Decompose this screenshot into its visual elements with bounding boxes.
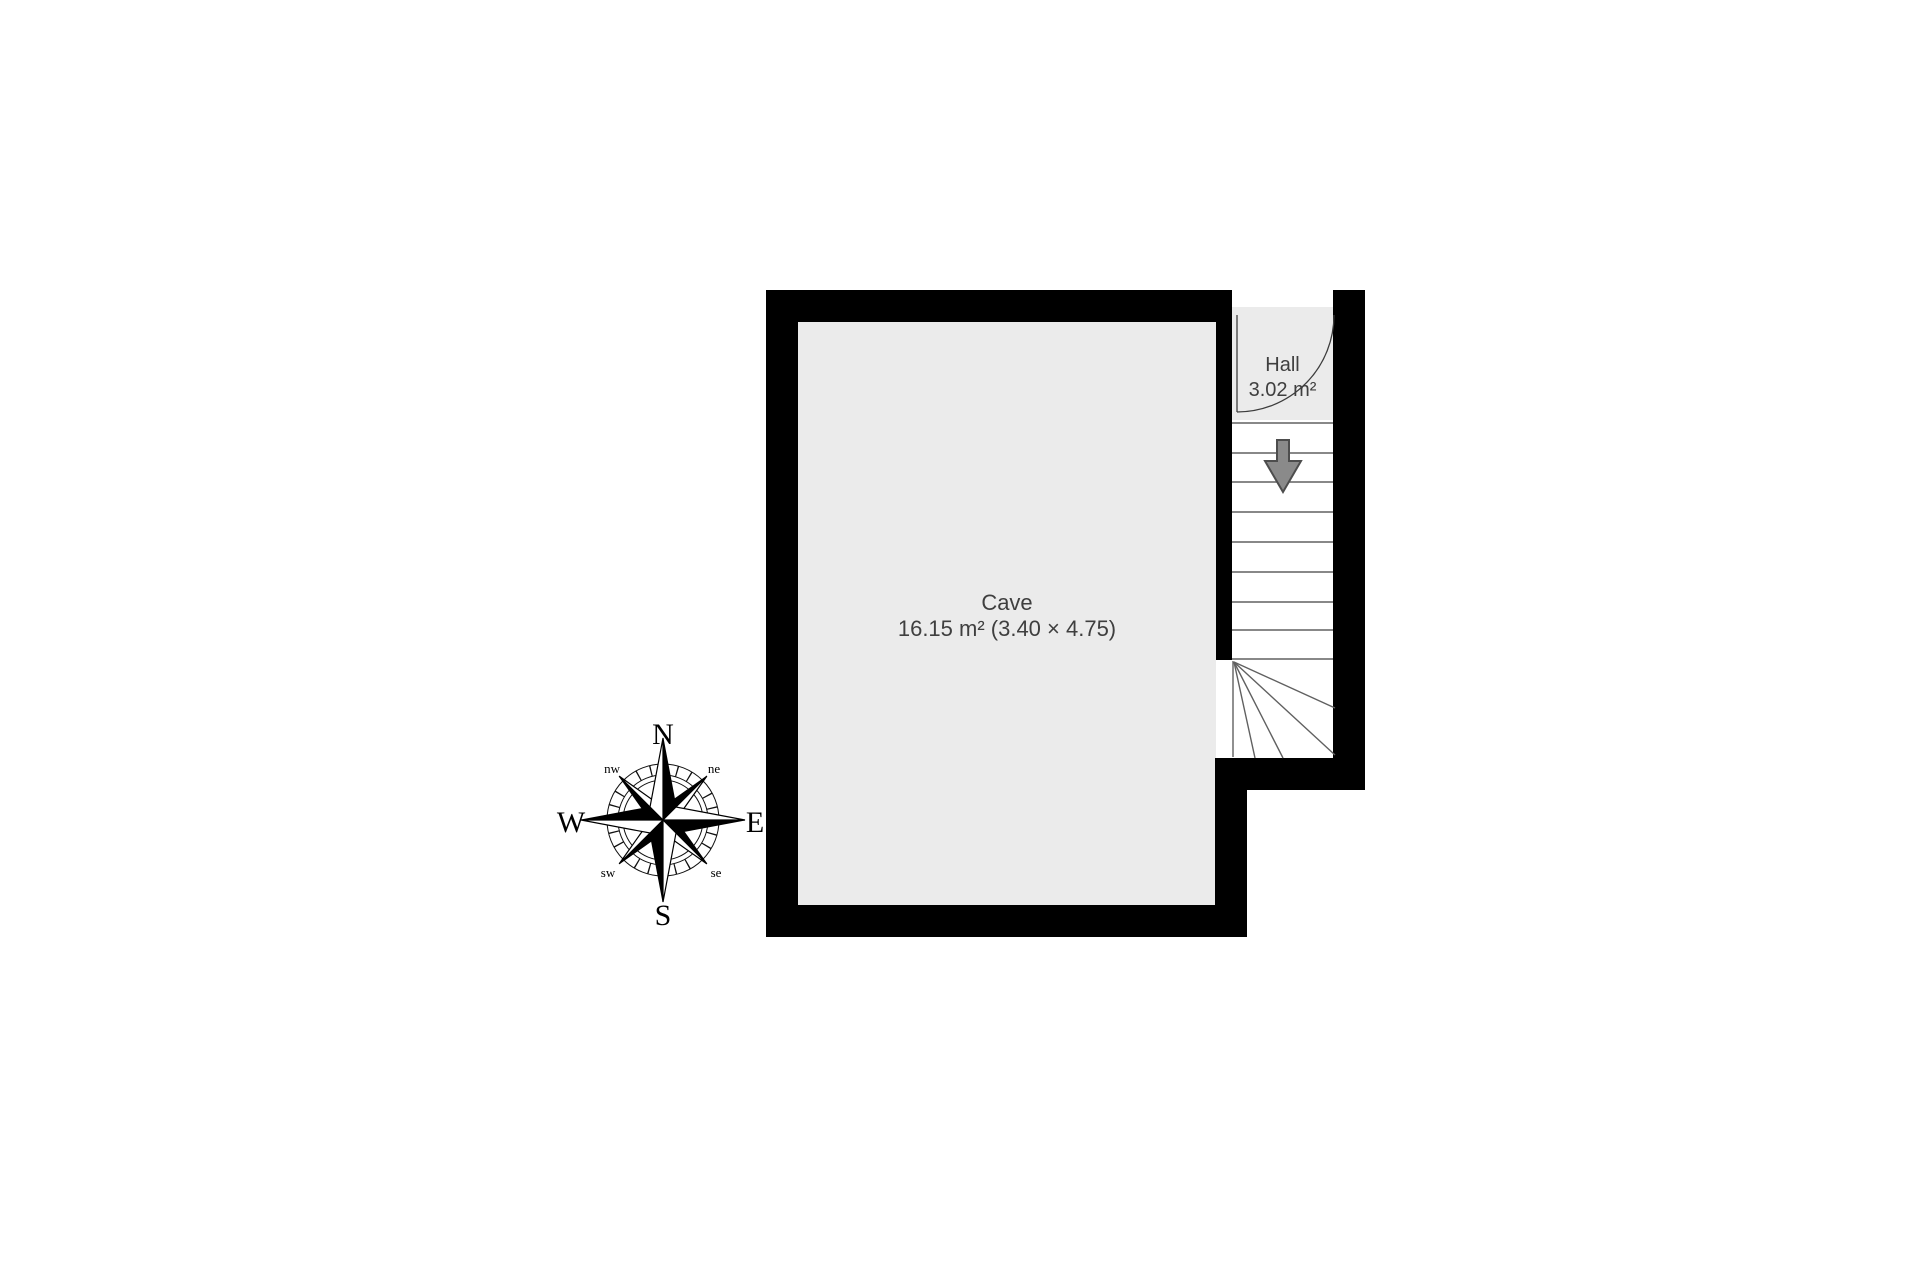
floorplan-page: Cave 16.15 m² (3.40 × 4.75) Hall 3.02 m² (0, 0, 1920, 1280)
compass-label-northwest: nw (604, 761, 621, 776)
hall-room-name: Hall (1232, 353, 1333, 378)
hall-room-label: Hall 3.02 m² (1232, 353, 1333, 403)
winder-steps (1233, 661, 1335, 758)
compass-label-west: W (557, 806, 586, 839)
compass-label-southwest: sw (601, 865, 616, 880)
compass-label-north: N (652, 718, 674, 751)
stairs-down-arrow-icon (1265, 440, 1301, 492)
compass-label-southeast: se (711, 865, 722, 880)
compass-label-south: S (655, 899, 672, 930)
cave-room-label: Cave 16.15 m² (3.40 × 4.75) (837, 590, 1177, 642)
compass-label-northeast: ne (708, 761, 721, 776)
cave-room-area: 16.15 m² (3.40 × 4.75) (837, 616, 1177, 642)
compass-rose: N E S W nw ne sw se (553, 710, 773, 930)
cave-room-name: Cave (837, 590, 1177, 616)
floor-plan: Cave 16.15 m² (3.40 × 4.75) Hall 3.02 m² (760, 280, 1370, 940)
hall-room-area: 3.02 m² (1232, 378, 1333, 403)
